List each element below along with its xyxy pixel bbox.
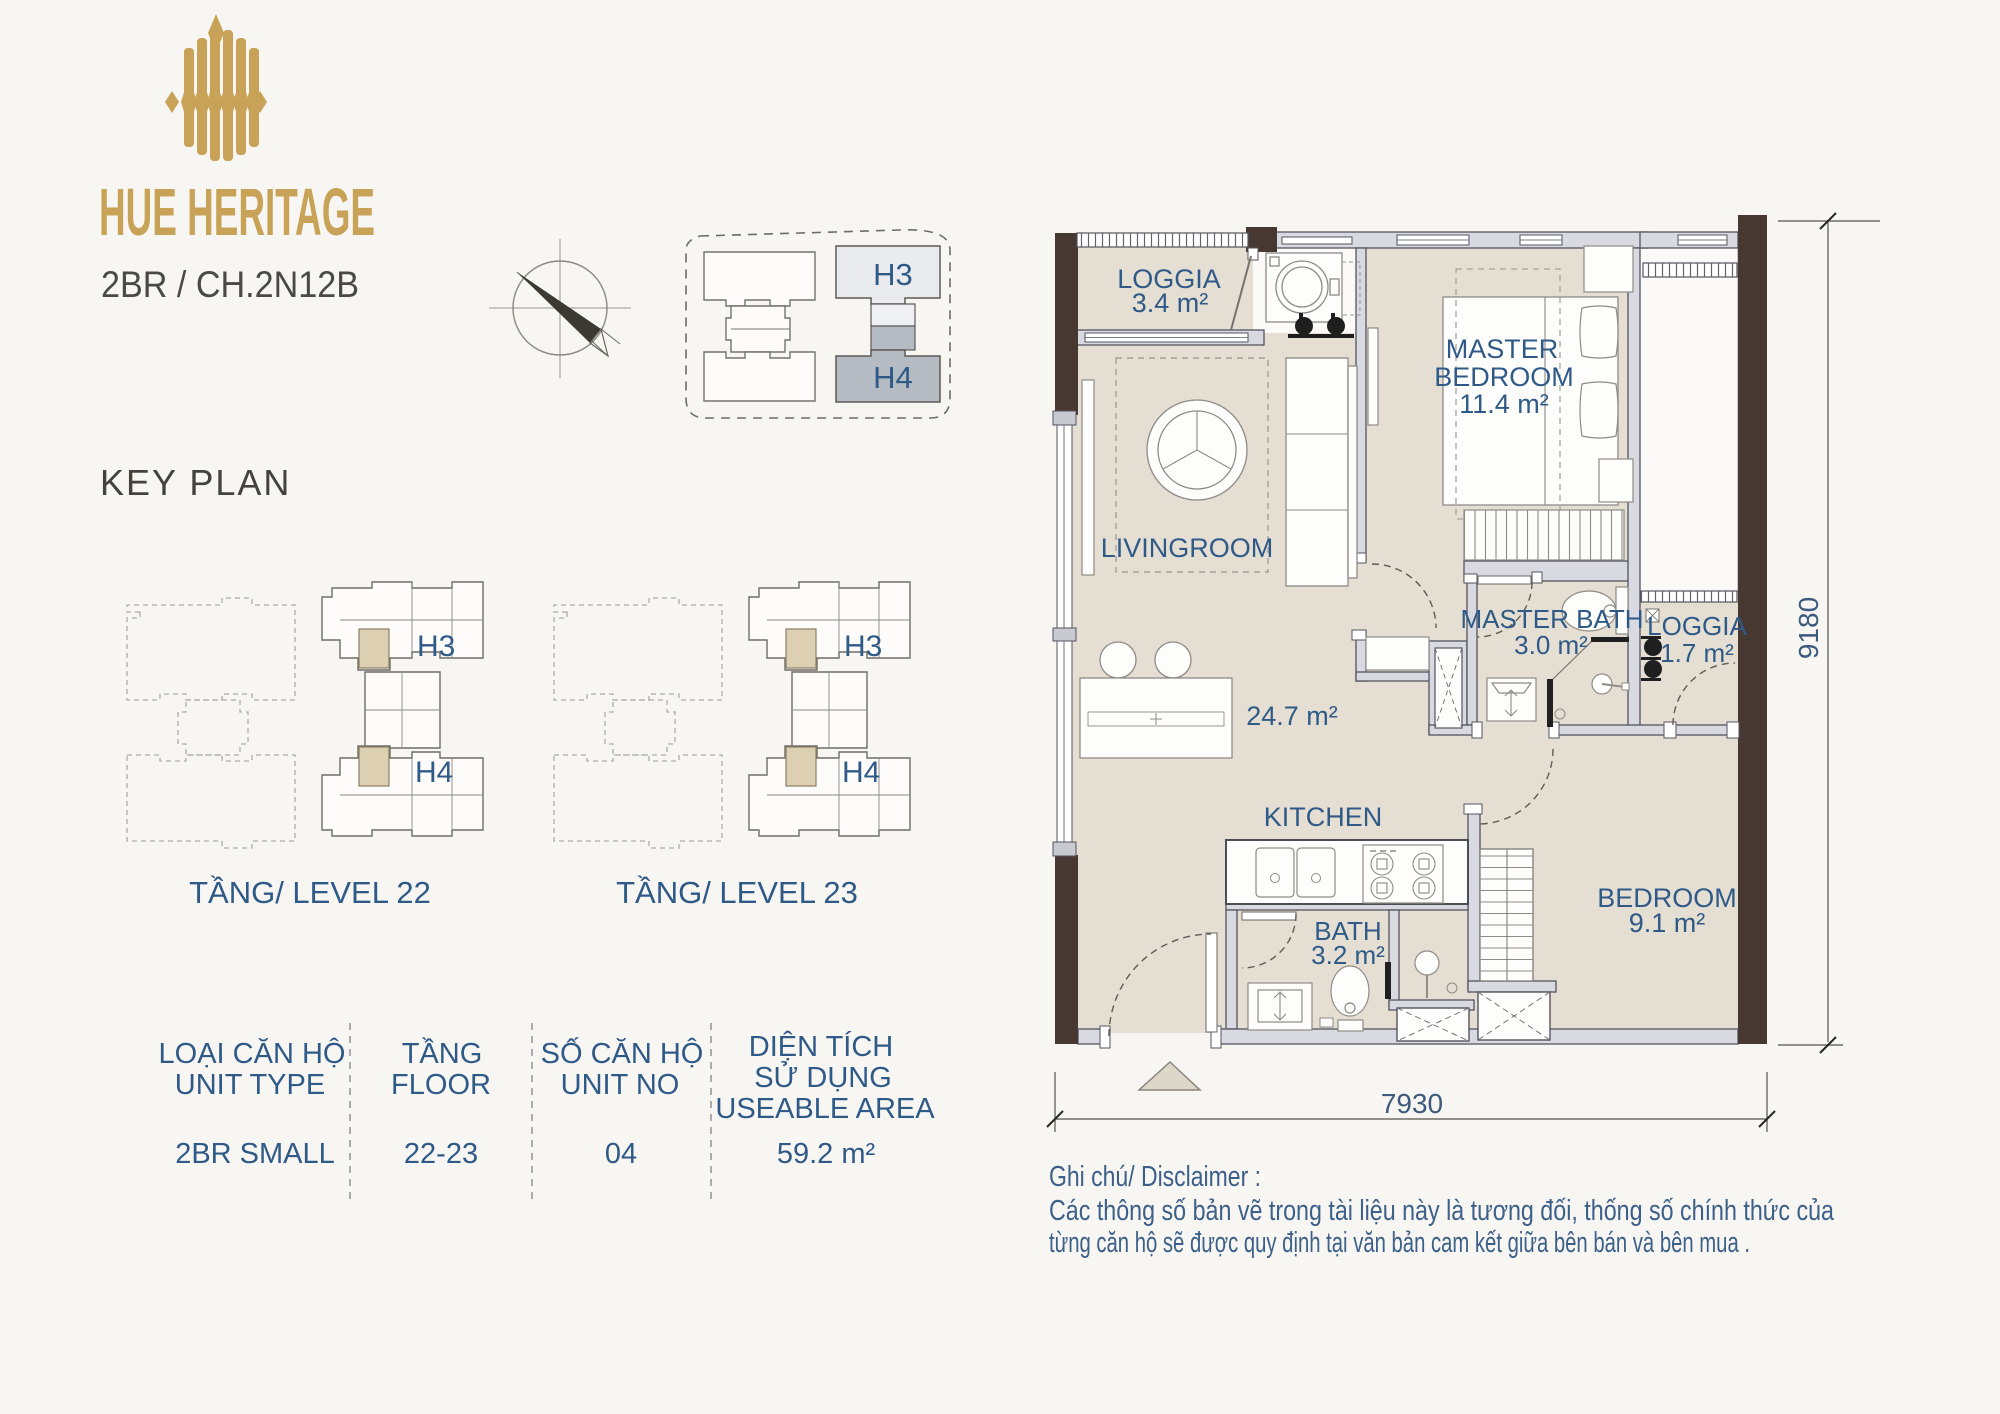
svg-text:3.4 m²: 3.4 m² (1132, 288, 1209, 318)
svg-text:HUE HERITAGE: HUE HERITAGE (99, 175, 375, 250)
svg-text:SỬ DỤNG: SỬ DỤNG (754, 1060, 892, 1094)
svg-text:59.2 m²: 59.2 m² (777, 1138, 876, 1170)
svg-text:3.0 m²: 3.0 m² (1514, 630, 1588, 660)
svg-text:Các thông số bản vẽ trong tài: Các thông số bản vẽ trong tài liệu này l… (1049, 1195, 1835, 1227)
svg-text:H4: H4 (873, 360, 913, 395)
svg-text:H3: H3 (844, 630, 882, 663)
svg-text:04: 04 (605, 1138, 637, 1170)
svg-text:7930: 7930 (1381, 1088, 1443, 1119)
svg-text:LOẠI CĂN HỘ: LOẠI CĂN HỘ (159, 1036, 346, 1070)
svg-text:11.4 m²: 11.4 m² (1459, 389, 1549, 419)
svg-text:24.7 m²: 24.7 m² (1246, 701, 1338, 731)
svg-text:USEABLE AREA: USEABLE AREA (715, 1093, 935, 1125)
svg-text:Ghi chú/ Disclaimer :: Ghi chú/ Disclaimer : (1049, 1161, 1261, 1193)
svg-text:22-23: 22-23 (404, 1138, 478, 1170)
svg-text:H3: H3 (873, 257, 913, 292)
svg-text:LOGGIA: LOGGIA (1647, 611, 1747, 641)
svg-text:H3: H3 (417, 630, 455, 663)
svg-text:1.7 m²: 1.7 m² (1660, 638, 1734, 668)
svg-text:UNIT TYPE: UNIT TYPE (175, 1069, 325, 1101)
svg-text:KITCHEN: KITCHEN (1264, 802, 1383, 832)
svg-text:DIỆN TÍCH: DIỆN TÍCH (749, 1030, 893, 1063)
svg-text:TẦNG/ LEVEL 23: TẦNG/ LEVEL 23 (616, 875, 858, 910)
svg-text:9.1 m²: 9.1 m² (1629, 908, 1706, 938)
svg-text:3.2 m²: 3.2 m² (1311, 940, 1385, 970)
svg-text:2BR / CH.2N12B: 2BR / CH.2N12B (101, 264, 359, 305)
svg-text:LIVINGROOM: LIVINGROOM (1101, 533, 1274, 563)
svg-text:từng căn hộ sẽ được quy định t: từng căn hộ sẽ được quy định tại văn bản… (1049, 1227, 1750, 1259)
svg-text:SỐ CĂN HỘ: SỐ CĂN HỘ (541, 1036, 704, 1070)
svg-text:TẦNG/ LEVEL 22: TẦNG/ LEVEL 22 (189, 875, 431, 910)
svg-text:FLOOR: FLOOR (391, 1069, 491, 1101)
svg-text:MASTER: MASTER (1446, 334, 1559, 364)
svg-text:UNIT NO: UNIT NO (561, 1069, 680, 1101)
svg-text:TẦNG: TẦNG (402, 1036, 483, 1070)
svg-text:BEDROOM: BEDROOM (1434, 362, 1574, 392)
svg-text:9180: 9180 (1793, 597, 1824, 659)
svg-text:H4: H4 (842, 756, 880, 789)
svg-text:2BR SMALL: 2BR SMALL (175, 1138, 335, 1170)
svg-text:H4: H4 (415, 756, 453, 789)
